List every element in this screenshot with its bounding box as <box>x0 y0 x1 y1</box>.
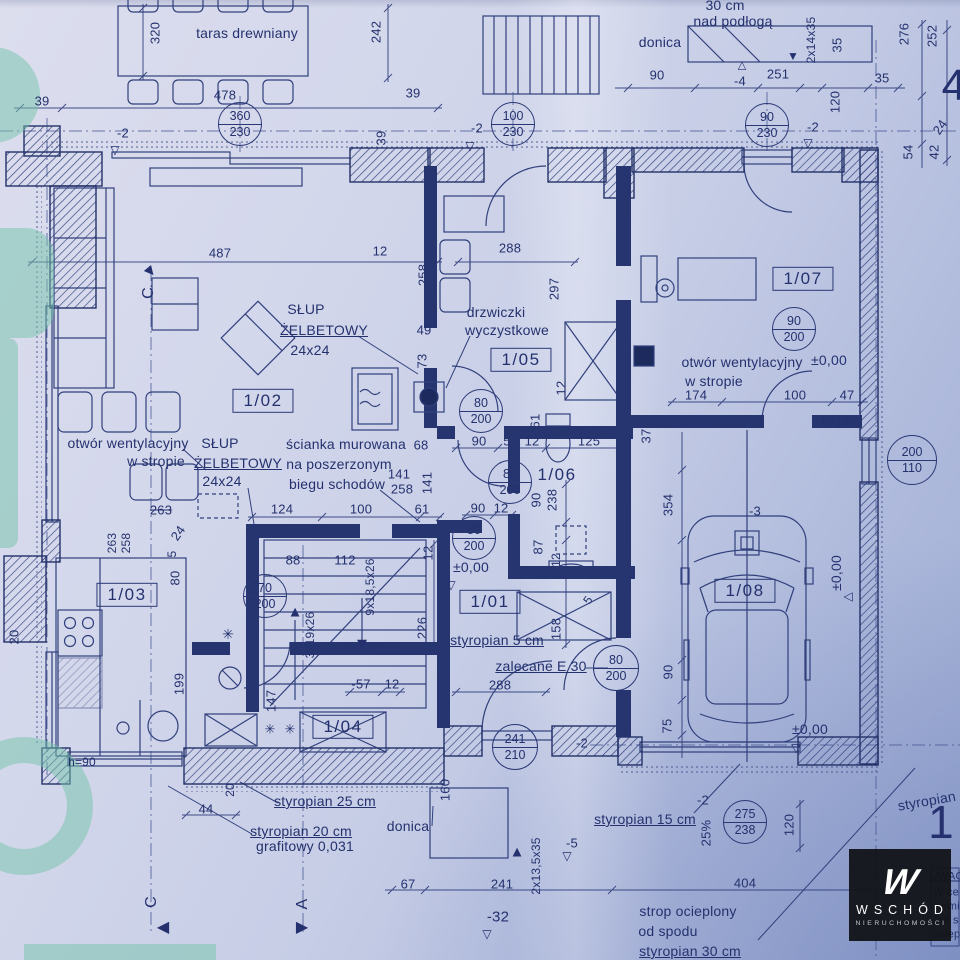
dim-label: 241 <box>491 878 513 891</box>
door-height: 238 <box>735 824 756 837</box>
dim-label: 47 <box>840 389 855 402</box>
door-height: 230 <box>503 126 524 139</box>
door-size-circle: 70200 <box>243 574 287 618</box>
dim-label: 39 <box>35 95 50 108</box>
room-label: 1/01 <box>459 590 520 614</box>
dim-label: 54 <box>902 145 915 160</box>
floorplan-photo: 320taras drewniany24230 cmnad podłogądon… <box>0 0 960 960</box>
note-label: drzwiczki <box>467 305 526 319</box>
dim-label: 90 <box>471 502 486 515</box>
note-label: strop ocieplony <box>639 904 736 918</box>
dim-label: 404 <box>734 877 756 890</box>
dim-label: 67 <box>401 878 416 891</box>
door-height: 230 <box>230 126 251 139</box>
stair-arrow-icon: ▼ <box>354 636 371 653</box>
dim-label: 199 <box>173 673 186 695</box>
dim-label: -3 <box>749 505 761 518</box>
dim-label: -2 <box>471 122 483 135</box>
dim-label: 120 <box>829 91 842 113</box>
door-size-circle: 275238 <box>723 800 767 844</box>
dim-label: 258 <box>391 483 413 496</box>
dim-label: 88 <box>286 554 301 567</box>
level-label: ±0,00 <box>811 353 847 367</box>
door-height: 200 <box>784 331 805 344</box>
dim-label: 242 <box>370 21 383 43</box>
note-label: SŁUP <box>287 302 324 316</box>
note-label: styropian 5 cm <box>450 633 544 647</box>
note-label: otwór wentylacyjny <box>67 436 188 450</box>
section-letter: A <box>295 899 311 910</box>
dim-label: 39 <box>375 131 388 146</box>
note-label: nad podłogą <box>693 14 772 28</box>
dim-label: 61 <box>529 414 542 429</box>
dim-label: -32 <box>487 910 509 925</box>
dim-label: 12 <box>385 678 400 691</box>
dim-label: 288 <box>499 242 521 255</box>
level-marker-icon: ▽ <box>465 140 474 152</box>
dim-label: 263 <box>106 533 118 554</box>
area-label: donica <box>387 819 429 833</box>
sheet-number: 1 <box>928 799 954 845</box>
room-label: 1/07 <box>772 267 833 291</box>
dim-label: 3x19x26 <box>304 612 316 659</box>
door-width: 90 <box>760 111 774 124</box>
note-label: 30 cm <box>705 0 744 12</box>
door-width: 100 <box>503 110 524 123</box>
dim-label: -2 <box>807 121 819 134</box>
stair-arrow-icon: ▲ <box>510 845 525 860</box>
note-label: h=90 <box>68 756 96 768</box>
note-label: biegu schodów <box>289 477 385 491</box>
note-label: od spodu <box>638 924 697 938</box>
note-label: otwór wentylacyjny <box>681 355 802 369</box>
level-label: ±0,00 <box>792 722 828 736</box>
note-label: styropian 20 cm <box>250 824 352 838</box>
dim-label: 68 <box>414 439 429 452</box>
note-label: ŻELBETOWY <box>194 456 282 470</box>
dim-label: 160 <box>439 779 452 801</box>
dim-label: 37 <box>640 429 653 444</box>
dim-label: 252 <box>926 25 939 47</box>
door-width: 241 <box>505 733 526 746</box>
level-marker-icon: ▽ <box>803 137 812 149</box>
dim-label: 263 <box>150 504 172 517</box>
dim-label: 90 <box>650 69 665 82</box>
section-letter: C <box>144 896 160 908</box>
room-label: 1/03 <box>96 583 157 607</box>
door-size-circle: 100230 <box>491 102 535 146</box>
door-size-circle: 80200 <box>459 389 503 433</box>
level-marker-icon: △ <box>738 61 746 72</box>
level-marker-icon: ▽ <box>446 579 455 591</box>
section-arrow-icon: ▶ <box>296 920 308 936</box>
dim-label: 80 <box>169 571 182 586</box>
dim-label: 20 <box>224 783 236 797</box>
dim-label: 258 <box>417 264 430 286</box>
dim-label: 42 <box>928 145 941 160</box>
dim-label: 276 <box>898 23 911 45</box>
dim-label: 12 <box>525 435 540 448</box>
dim-label: 238 <box>546 489 559 511</box>
dim-label: 5 <box>503 435 510 448</box>
dim-label: 297 <box>548 278 561 300</box>
door-size-circle: 80200 <box>488 460 532 504</box>
dim-label: 9x18,5x26 <box>364 558 376 615</box>
room-label: 1/06 <box>537 465 576 485</box>
dim-label: 12 <box>555 381 568 396</box>
dim-label: 100 <box>784 389 806 402</box>
room-label: 1/08 <box>714 579 775 603</box>
dim-label: 141 <box>421 472 434 494</box>
door-width: 80 <box>609 654 623 667</box>
dim-label: 61 <box>415 503 430 516</box>
appliance-symbol-icon: ✳ <box>285 723 296 736</box>
level-marker-icon: ▽ <box>562 850 571 862</box>
dim-label: 25% <box>700 820 713 847</box>
dim-label: 73 <box>416 354 429 369</box>
dim-label: 226 <box>416 617 429 639</box>
level-label: ±0,00 <box>453 560 489 574</box>
dim-label: 12 <box>550 553 562 567</box>
level-label: ±0,00 <box>829 555 843 591</box>
note-label: 24x24 <box>290 343 329 357</box>
dim-label: 100 <box>350 503 372 516</box>
dim-label: 288 <box>489 679 511 692</box>
dim-label: 49 <box>417 324 432 337</box>
door-height: 200 <box>471 413 492 426</box>
dim-label: 124 <box>271 503 293 516</box>
dim-label: 112 <box>334 554 355 567</box>
dim-label: 320 <box>149 22 162 44</box>
dim-label: 478 <box>214 89 236 102</box>
dim-label: 5 <box>166 551 178 558</box>
note-label: h=100 <box>822 415 857 427</box>
note-label: na poszerzonym <box>286 457 392 471</box>
appliance-symbol-icon: ✳ <box>222 627 234 641</box>
note-label: w stropie <box>127 454 185 468</box>
level-marker-icon: ▼ <box>787 50 799 62</box>
dim-label: 120 <box>783 814 796 836</box>
dim-label: -5 <box>566 837 578 850</box>
dim-label: 39 <box>406 87 421 100</box>
door-size-circle: 360230 <box>218 102 262 146</box>
watermark-monogram-icon: W <box>880 864 920 900</box>
dim-label: 90 <box>662 665 675 680</box>
door-height: 200 <box>500 484 521 497</box>
door-width: 80 <box>474 397 488 410</box>
dim-label: 35 <box>831 38 844 53</box>
door-width: 90 <box>787 315 801 328</box>
dim-label: -2 <box>697 794 709 807</box>
dim-label: 12 <box>373 245 388 258</box>
note-label: 24x24 <box>202 474 241 488</box>
dim-label: -2 <box>117 127 129 140</box>
note-label: styropian 25 cm <box>274 794 376 808</box>
appliance-symbol-icon: ✳ <box>265 723 276 736</box>
door-width: 80 <box>503 468 517 481</box>
level-marker-icon: ▽ <box>110 144 119 156</box>
note-label: grafitowy 0,031 <box>256 839 354 853</box>
dim-label: 90 <box>530 493 543 508</box>
door-height: 200 <box>255 598 276 611</box>
dim-label: 2x13,5x35 <box>530 837 542 894</box>
door-size-circle: 80200 <box>452 516 496 560</box>
door-height: 110 <box>902 462 922 475</box>
dim-label: 20 <box>8 630 21 645</box>
door-height: 210 <box>505 749 526 762</box>
door-size-circle: 200110 <box>887 435 937 485</box>
dim-label: 75 <box>661 719 674 734</box>
area-label: donica <box>639 35 681 49</box>
door-size-circle: 241210 <box>492 724 538 770</box>
stair-arrow-icon: ▲ <box>288 605 303 620</box>
watermark-logo: W WSCHÓD NIERUCHOMOŚCI <box>849 849 951 941</box>
dim-label: 487 <box>209 247 231 260</box>
door-size-circle: 80200 <box>593 645 639 691</box>
room-label: 1/05 <box>490 348 551 372</box>
dim-label: 354 <box>662 494 675 516</box>
dim-label: 125 <box>578 435 600 448</box>
level-marker-icon: ▽ <box>791 742 800 754</box>
note-label: wyczystkowe <box>465 323 549 337</box>
door-width: 70 <box>258 582 272 595</box>
watermark-brand: WSCHÓD <box>851 903 949 917</box>
dim-label: 44 <box>199 803 214 816</box>
sheet-number: 4 <box>942 64 960 108</box>
level-marker-icon: ▽ <box>843 592 855 601</box>
door-height: 200 <box>464 540 485 553</box>
note-label: zalecane E 30 <box>495 659 586 673</box>
door-width: 360 <box>230 110 251 123</box>
dim-label: 174 <box>685 389 707 402</box>
door-size-circle: 90200 <box>772 307 816 351</box>
door-height: 200 <box>606 670 627 683</box>
area-label: taras drewniany <box>196 26 298 40</box>
door-width: 200 <box>902 446 923 459</box>
door-width: 80 <box>467 524 481 537</box>
note-label: SŁUP <box>201 436 238 450</box>
dim-label: 258 <box>120 533 132 554</box>
dim-label: 12 <box>422 546 435 561</box>
dim-label: 2x14x35 <box>805 17 817 64</box>
dim-label: 158 <box>550 618 563 640</box>
floorplan-drawing <box>0 0 960 960</box>
dim-label: 90 <box>472 435 487 448</box>
note-label: styropian 30 cm <box>639 944 741 958</box>
note-label: w stropie <box>685 374 743 388</box>
dim-label: 87 <box>532 540 545 555</box>
section-arrow-icon: ◀ <box>157 920 169 936</box>
door-width: 275 <box>735 808 756 821</box>
section-letter: C <box>141 287 157 299</box>
room-label: 1/04 <box>312 715 373 739</box>
note-label: ŻELBETOWY <box>280 323 368 337</box>
dim-label: 35 <box>875 72 890 85</box>
door-size-circle: 90230 <box>745 103 789 147</box>
dim-label: -2 <box>576 737 588 750</box>
dim-label: 141 <box>388 468 410 481</box>
dim-label: 251 <box>767 68 789 81</box>
level-marker-icon: ▽ <box>482 928 491 940</box>
door-height: 230 <box>757 127 778 140</box>
dim-label: -57 <box>351 678 370 691</box>
note-label: styropian 15 cm <box>594 812 696 826</box>
watermark-subtitle: NIERUCHOMOŚCI <box>853 920 946 927</box>
dim-label: -4 <box>734 75 746 88</box>
room-label: 1/02 <box>232 389 293 413</box>
note-label: ścianka murowana <box>286 437 406 451</box>
dim-label: 147 <box>265 690 278 712</box>
